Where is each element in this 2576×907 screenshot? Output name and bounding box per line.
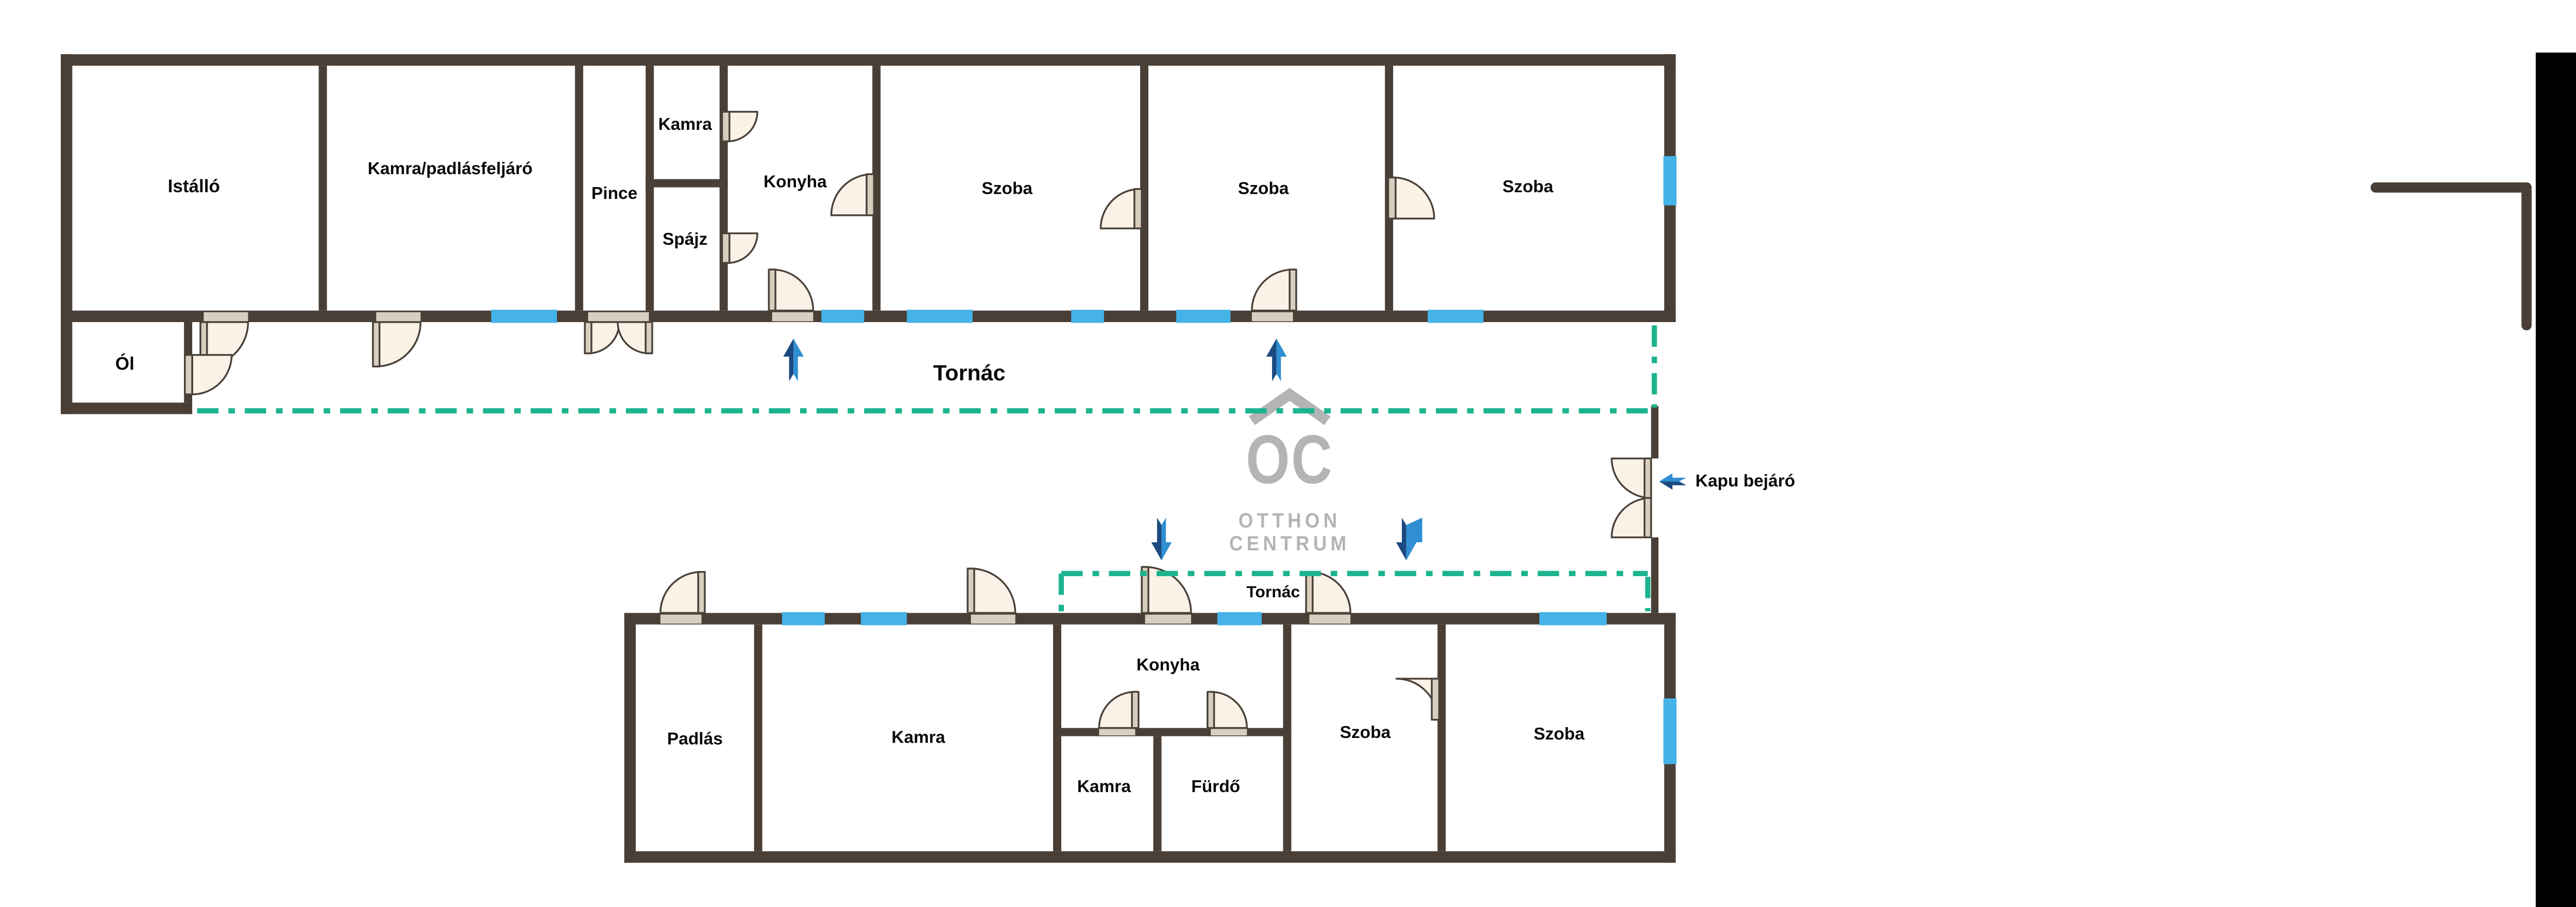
room-label-kamra-top: Kamra	[658, 115, 712, 135]
door-threshold	[376, 312, 420, 322]
wall-segment	[61, 402, 192, 414]
room-label-szoba-2: Szoba	[1238, 179, 1289, 199]
door-leaf	[1306, 572, 1313, 613]
room-label-pince: Pince	[591, 184, 637, 204]
wall-segment	[1437, 625, 1446, 851]
window-marker	[1539, 612, 1607, 626]
door-swing	[192, 355, 232, 395]
door-leaf	[1208, 692, 1214, 728]
wall-segment	[2521, 186, 2532, 330]
top-building-walls	[61, 54, 1676, 414]
wall-segment	[1154, 736, 1162, 851]
wall-segment	[624, 851, 1676, 863]
watermark-logo: OC	[1246, 421, 1333, 499]
door-swing	[376, 322, 420, 366]
room-label-szoba-1: Szoba	[981, 179, 1032, 199]
room-label-spajz: Spájz	[663, 230, 707, 249]
wall-segment	[184, 322, 192, 355]
wall-segment	[1651, 406, 1658, 459]
watermark-line-1: OTTHON	[1239, 510, 1341, 533]
door-leaf	[646, 322, 652, 354]
porch-label-bottom: Tornác	[1246, 584, 1300, 602]
door-leaf	[1132, 692, 1139, 728]
window-marker	[1176, 310, 1230, 323]
wall-segment	[575, 66, 583, 311]
door-leaf	[185, 355, 192, 395]
room-label-padlas: Padlás	[667, 730, 723, 749]
wall-segment	[754, 625, 762, 851]
door-leaf	[769, 270, 775, 311]
door-leaf	[722, 233, 729, 263]
door-threshold	[1309, 615, 1350, 624]
wall-segment	[1053, 728, 1291, 736]
door-swing	[728, 112, 757, 141]
room-label-kamra-big: Kamra	[891, 728, 945, 748]
door-leaf	[585, 322, 591, 354]
wall-segment	[624, 613, 636, 863]
porch-label-top: Tornác	[933, 361, 1005, 385]
wall-segment	[1651, 538, 1658, 613]
room-label-konyha-bottom: Konyha	[1137, 656, 1200, 675]
door-leaf	[968, 568, 974, 613]
wall-segment	[1053, 625, 1061, 851]
window-marker	[821, 310, 864, 323]
screenshot-right-black-bar	[2536, 53, 2576, 907]
door-threshold	[971, 615, 1015, 624]
boundary-walls	[2370, 182, 2531, 330]
door-leaf	[1645, 459, 1651, 498]
window-marker	[782, 612, 825, 626]
door-leaf	[373, 322, 380, 366]
wall-segment	[61, 54, 1676, 65]
entrance-arrows	[783, 339, 1686, 560]
door-threshold	[1252, 312, 1293, 322]
room-label-szoba-3: Szoba	[1502, 177, 1553, 197]
door-swing	[1099, 692, 1135, 728]
door-swing	[1393, 177, 1434, 219]
room-label-istallo: Istálló	[168, 177, 220, 197]
up-arrow-icon	[783, 339, 804, 381]
window-marker	[907, 310, 973, 323]
up-arrow-icon	[1266, 339, 1287, 381]
window-marker	[1664, 698, 1677, 764]
wall-segment	[61, 54, 72, 414]
door-swing	[1211, 692, 1247, 728]
door-swing	[1309, 572, 1350, 613]
door-threshold	[204, 312, 248, 322]
wall-segment	[184, 394, 192, 402]
door-leaf	[1432, 679, 1439, 720]
wall-segment	[720, 66, 728, 311]
door-swing	[618, 322, 649, 354]
door-leaf	[722, 112, 729, 141]
door-leaf	[1290, 270, 1296, 311]
door-leaf	[1645, 498, 1651, 538]
bottom-building-walls	[624, 613, 1676, 863]
wall-segment	[1283, 625, 1291, 851]
left-arrow-icon	[1659, 473, 1687, 490]
porch-boundary-lines	[197, 325, 1654, 611]
door-threshold	[660, 615, 702, 624]
window-marker	[1428, 310, 1483, 323]
floor-plan: Istálló Kamra/padlásfeljáró Pince Kamra …	[0, 0, 2576, 907]
door-leaf	[1134, 189, 1142, 229]
down-arrow-icon	[1151, 517, 1172, 560]
watermark-line-2: CENTRUM	[1229, 532, 1350, 556]
wall-segment	[646, 66, 654, 311]
window-marker	[861, 612, 907, 626]
door-swing	[971, 568, 1015, 613]
roof-chevron-icon	[1252, 394, 1328, 421]
door-threshold	[1145, 615, 1191, 624]
door-swing	[588, 322, 620, 354]
down-arrow-icon	[1396, 517, 1422, 560]
door-leaf	[867, 174, 874, 215]
doors	[185, 112, 1651, 728]
door-swing	[660, 572, 702, 613]
window-marker	[1071, 310, 1104, 323]
gate-wall	[1651, 406, 1658, 613]
door-threshold	[588, 312, 649, 322]
room-label-ol: Ól	[115, 355, 134, 375]
door-swing	[1252, 270, 1293, 311]
wall-segment	[2370, 182, 2531, 193]
room-label-szoba-5: Szoba	[1534, 725, 1585, 744]
wall-segment	[319, 66, 327, 311]
door-threshold	[1099, 729, 1135, 735]
window-marker	[1217, 612, 1262, 626]
window-marker	[491, 310, 557, 323]
wall-segment	[646, 179, 727, 188]
room-label-furdo: Fürdő	[1191, 777, 1240, 797]
room-label-szoba-4: Szoba	[1340, 723, 1391, 743]
gate-entrance-label: Kapu bejáró	[1696, 472, 1795, 491]
room-label-kamra-padlasfeljaro: Kamra/padlásfeljáró	[368, 159, 533, 179]
door-threshold	[1211, 729, 1247, 735]
room-label-konyha-top: Konyha	[764, 173, 827, 192]
door-leaf	[1388, 177, 1396, 219]
door-swing	[772, 270, 814, 311]
window-marker	[1664, 156, 1677, 206]
door-leaf	[698, 572, 705, 613]
screenshot-root: { "document": { "type": "floor-plan", "b…	[0, 0, 2576, 907]
room-label-kamra-small: Kamra	[1077, 777, 1131, 797]
door-threshold	[772, 312, 814, 322]
door-swing	[728, 233, 757, 263]
